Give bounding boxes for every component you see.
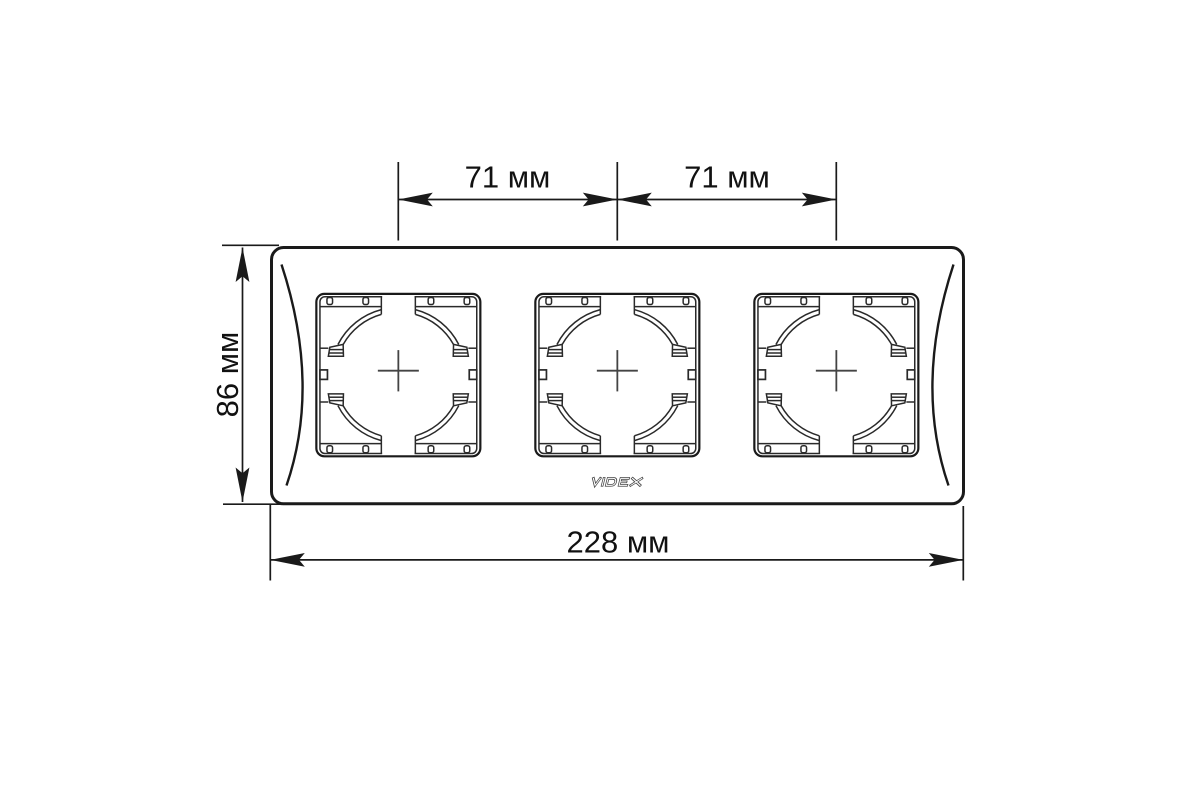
svg-text:71 мм: 71 мм	[684, 160, 770, 195]
svg-text:86 мм: 86 мм	[210, 332, 245, 418]
svg-text:228 мм: 228 мм	[567, 525, 670, 560]
svg-text:71 мм: 71 мм	[465, 160, 551, 195]
